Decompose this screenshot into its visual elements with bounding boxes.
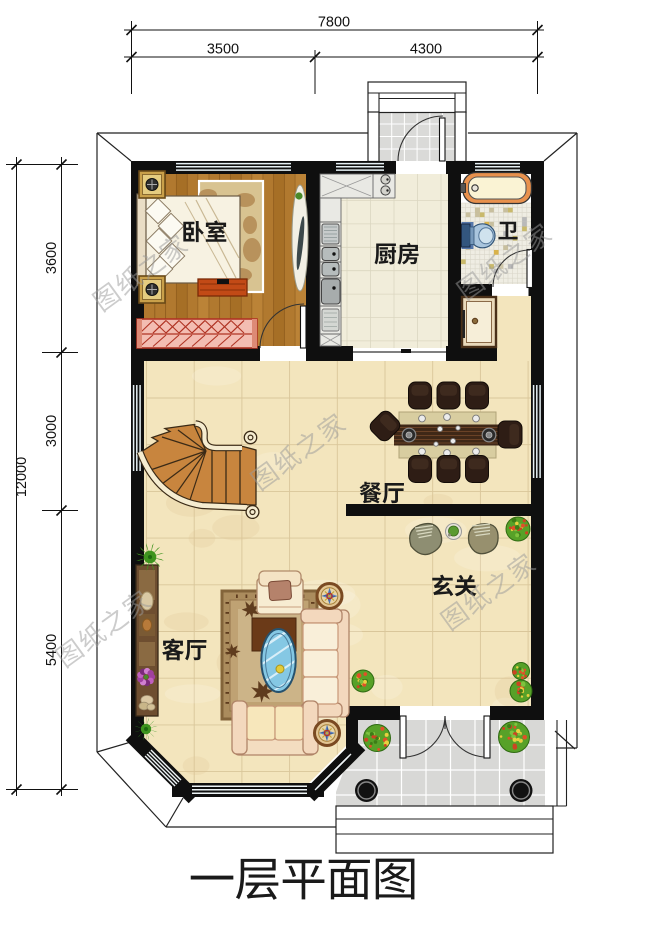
svg-text:7800: 7800 xyxy=(318,15,350,31)
svg-text:4300: 4300 xyxy=(410,42,442,58)
svg-text:12000: 12000 xyxy=(14,457,30,497)
svg-text:3600: 3600 xyxy=(44,242,60,274)
svg-text:3000: 3000 xyxy=(44,415,60,447)
svg-text:3500: 3500 xyxy=(207,42,239,58)
